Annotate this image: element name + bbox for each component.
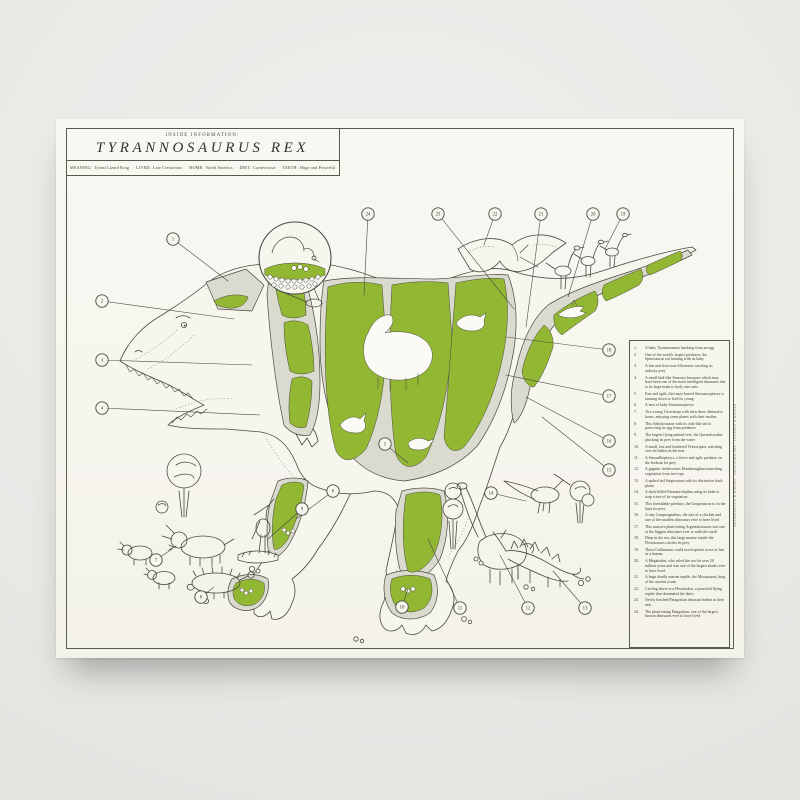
legend-item: 4.A small bird-like Stenonychosaurus whi… <box>634 376 726 390</box>
title-row: INSIDE INFORMATION: TYRANNOSAURUS REX <box>66 128 339 161</box>
legend-list: 1.A baby Tyrannosaurus hatching from an … <box>634 346 726 619</box>
meta-item: HOME: North America <box>189 165 232 170</box>
meta-item: LIVED: Late Cretaceous <box>136 165 182 170</box>
meta-value: North America <box>205 165 233 170</box>
callout-line <box>500 555 528 608</box>
legend-item-number: 14. <box>634 490 643 499</box>
callout-number: 21 <box>539 213 544 218</box>
legend-item-number: 20. <box>634 559 643 573</box>
meta-label: TEETH: <box>282 165 297 170</box>
stegosaurus <box>493 530 590 587</box>
legend-item: 1.A baby Tyrannosaurus hatching from an … <box>634 346 726 351</box>
legend-item-number: 15. <box>634 502 643 511</box>
credit-vertical: DESIGN & CONCEPT · ART DIRECTION · DESIG… <box>732 404 737 639</box>
callout-number: 14 <box>489 492 494 497</box>
legend-item: 12.A gigantic herbivorous Dreadnoughtus … <box>634 467 726 476</box>
legend-item: 21.A huge deadly marine reptile, the Mos… <box>634 575 726 584</box>
legend-item-text: A spiked tail Stegosaurus with its disti… <box>645 479 726 488</box>
legend-item-text: A gigantic herbivorous Dreadnoughtus mun… <box>645 467 726 476</box>
legend-item: 13.A spiked tail Stegosaurus with its di… <box>634 479 726 488</box>
legend-item: 23.Newly hatched Patagotitan dinosaur ba… <box>634 598 726 607</box>
pteranodon <box>458 235 566 272</box>
legend-item-text: A tiny Compsognathus, the size of a chic… <box>645 513 726 522</box>
meta-value: Tyrant Lizard King <box>93 165 129 170</box>
legend-item-number: 21. <box>634 575 643 584</box>
legend-item-number: 24. <box>634 610 643 619</box>
callout-number: 13 <box>583 607 588 612</box>
meta-value: Carnivorous <box>252 165 276 170</box>
callout-number: 12 <box>526 607 531 612</box>
tree-left <box>156 454 201 517</box>
legend-item-text: The plant-eating Patagotitan, one of the… <box>645 610 726 619</box>
legend-item-number: 8. <box>634 422 643 431</box>
legend-item-number: 22. <box>634 587 643 596</box>
legend-item-text: A fast and ferocious Allosaurus catching… <box>645 364 726 373</box>
legend-item-number: 13. <box>634 479 643 488</box>
legend-item-number: 3. <box>634 364 643 373</box>
legend-item-number: 17. <box>634 525 643 534</box>
meta-item: DIET: Carnivorous <box>240 165 276 170</box>
callout-number: 24 <box>366 213 371 218</box>
legend-item-number: 7. <box>634 410 643 419</box>
meta-value: Huge and Powerful <box>299 165 335 170</box>
legend-item-number: 4. <box>634 376 643 390</box>
legend-item-text: Fast and agile, the fuzzy-haired Sinosau… <box>645 392 726 401</box>
meta-label: LIVED: <box>136 165 151 170</box>
legend-item: 18.Deep in the sea, this large marine re… <box>634 536 726 545</box>
legend-item-text: One of the world's largest predators, th… <box>645 353 726 362</box>
legend-item-text: Circling above is a Pteranodon, a powerf… <box>645 587 726 596</box>
legend-item-text: A baby Tyrannosaurus hatching from an eg… <box>645 346 726 351</box>
legend-item: 10.A small, fast and feathered Velocirap… <box>634 445 726 454</box>
callout-number: 15 <box>607 469 612 474</box>
legend-item-text: This formidable predator, the Gorgosauru… <box>645 502 726 511</box>
legend-item-number: 9. <box>634 433 643 442</box>
legend-item-text: A nest of baby Sinosauropteryx <box>645 403 726 408</box>
callout-number: 20 <box>591 213 596 218</box>
callout-number: 23 <box>436 213 441 218</box>
callout-line <box>542 417 609 470</box>
legend-item-text: This Ankylosaurus with its club-like tai… <box>645 422 726 431</box>
legend-item-number: 10. <box>634 445 643 454</box>
legend-item-number: 11. <box>634 456 643 465</box>
legend-item-text: Deep in the sea, this large marine repti… <box>645 536 726 545</box>
legend-item: 20.A Megalodon, who ruled the sea for ov… <box>634 559 726 573</box>
legend-item: 5.Fast and agile, the fuzzy-haired Sinos… <box>634 392 726 401</box>
meta-label: HOME: <box>189 165 203 170</box>
legend-item-text: A huge deadly marine reptile, the Mosasa… <box>645 575 726 584</box>
triceratops-group <box>118 525 234 589</box>
legend-item-text: Newly hatched Patagotitan dinosaur babie… <box>645 598 726 607</box>
legend-item: 11.A Sinocalliopteryx, a fierce and agil… <box>634 456 726 465</box>
title-block: INSIDE INFORMATION: TYRANNOSAURUS REX ME… <box>66 128 340 176</box>
legend-item: 22.Circling above is a Pteranodon, a pow… <box>634 587 726 596</box>
meta-value: Late Cretaceous <box>152 165 183 170</box>
callout-number: 22 <box>493 213 498 218</box>
legend-item: 3.A fast and ferocious Allosaurus catchi… <box>634 364 726 373</box>
legend-item-text: This massive plant-eating Argentinosauru… <box>645 525 726 534</box>
meta-label: DIET: <box>240 165 251 170</box>
legend-item-number: 18. <box>634 536 643 545</box>
parasaurolophus <box>504 474 570 513</box>
meta-label: MEANING: <box>70 165 92 170</box>
poster-eyebrow: INSIDE INFORMATION: <box>68 133 337 138</box>
callout-number: 16 <box>607 440 612 445</box>
legend-item-number: 12. <box>634 467 643 476</box>
poster: 123456789101112131415161718192021222324 … <box>56 119 744 658</box>
legend-item: 6.A nest of baby Sinosauropteryx <box>634 403 726 408</box>
callout-number: 17 <box>607 395 612 400</box>
legend-item: 16.A tiny Compsognathus, the size of a c… <box>634 513 726 522</box>
legend-item-text: A duck-billed Parasaurolophus using its … <box>645 490 726 499</box>
legend-item: 14.A duck-billed Parasaurolophus using i… <box>634 490 726 499</box>
legend-item: 24.The plant-eating Patagotitan, one of … <box>634 610 726 619</box>
legend-item: 17.This massive plant-eating Argentinosa… <box>634 525 726 534</box>
legend-item-number: 5. <box>634 392 643 401</box>
meta-item: TEETH: Huge and Powerful <box>282 165 335 170</box>
callout-number: 19 <box>621 213 626 218</box>
legend-item: 15.This formidable predator, the Gorgosa… <box>634 502 726 511</box>
legend-item-text: A small, fast and feathered Velociraptor… <box>645 445 726 454</box>
legend-item: 7.Two young Triceratops with their three… <box>634 410 726 419</box>
legend-item: 9.The largest flying animal ever, the Qu… <box>634 433 726 442</box>
legend-item-number: 23. <box>634 598 643 607</box>
legend-item-number: 2. <box>634 353 643 362</box>
legend-item-number: 16. <box>634 513 643 522</box>
legend-box: 1.A baby Tyrannosaurus hatching from an … <box>629 340 730 648</box>
callout-line <box>173 239 228 281</box>
legend-item: 2.One of the world's largest predators, … <box>634 353 726 362</box>
meta-item: MEANING: Tyrant Lizard King <box>70 165 129 170</box>
legend-item-number: 19. <box>634 548 643 557</box>
legend-item-text: The largest flying animal ever, the Quet… <box>645 433 726 442</box>
poster-title: TYRANNOSAURUS REX <box>68 141 337 156</box>
legend-item-text: These Gallimimus could reach speeds twic… <box>645 548 726 557</box>
legend-item: 19.These Gallimimus could reach speeds t… <box>634 548 726 557</box>
trex-pupil <box>184 325 186 327</box>
legend-item-text: A Megalodon, who ruled the sea for over … <box>645 559 726 573</box>
callout-line <box>526 397 609 441</box>
callout-line <box>553 571 585 608</box>
legend-item-text: Two young Triceratops with their three d… <box>645 410 726 419</box>
legend-item-number: 1. <box>634 346 643 351</box>
callout-number: 10 <box>400 606 405 611</box>
legend-item-text: A small bird-like Stenonychosaurus which… <box>645 376 726 390</box>
callout-number: 18 <box>607 349 612 354</box>
poster-meta-row: MEANING: Tyrant Lizard KingLIVED: Late C… <box>66 161 339 175</box>
callout-number: 11 <box>458 607 463 612</box>
legend-item-number: 6. <box>634 403 643 408</box>
legend-item-text: A Sinocalliopteryx, a fierce and agile p… <box>645 456 726 465</box>
legend-item: 8.This Ankylosaurus with its club-like t… <box>634 422 726 431</box>
tree-right <box>570 481 594 523</box>
